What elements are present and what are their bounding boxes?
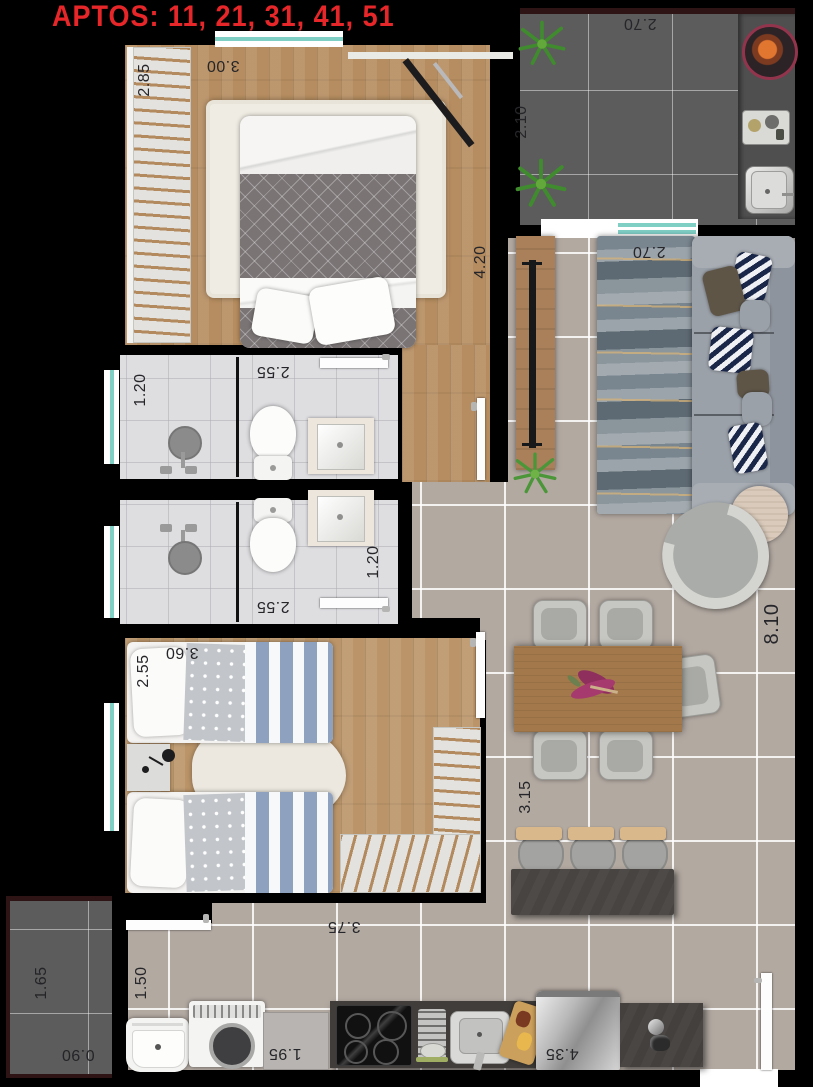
entrance-door <box>761 973 772 1070</box>
dim-bedroom2-width: 2.55 <box>134 643 154 699</box>
dim-bath1-length: 2.55 <box>245 361 301 381</box>
hall-floor <box>412 482 508 640</box>
laundry-sink <box>126 1018 189 1072</box>
shower-tap <box>185 524 197 532</box>
dining-chair <box>599 600 653 650</box>
bar-stool <box>568 827 614 873</box>
bedroom2-door <box>476 632 485 718</box>
shower-partition <box>236 502 239 622</box>
sink-lip <box>132 1023 183 1026</box>
shower-partition <box>236 357 239 477</box>
toilet <box>250 496 296 572</box>
laundry-door <box>126 920 211 930</box>
drain <box>155 1044 161 1050</box>
outdoor-sink <box>745 166 794 214</box>
dim-living-length: 8.10 <box>762 596 782 652</box>
chair-seat <box>541 740 577 772</box>
bowl <box>748 119 761 132</box>
window-glass <box>110 526 114 618</box>
chair-seat <box>607 608 643 640</box>
bar-stool <box>620 827 666 873</box>
food-item <box>515 1031 534 1052</box>
glass-pane <box>618 223 696 227</box>
dim-kitchen-length: 4.35 <box>534 1043 590 1063</box>
blanket <box>183 793 248 892</box>
bathroom1-door <box>320 358 388 368</box>
dim-living-width: 2.70 <box>621 241 677 261</box>
bedroom2-window <box>104 703 119 831</box>
striped-duvet <box>245 642 333 743</box>
toilet-bowl <box>250 518 296 572</box>
faucet <box>337 442 343 448</box>
wall-lining <box>348 52 513 59</box>
tv-foot <box>522 262 542 265</box>
dim-balcony-depth: 2.10 <box>512 94 532 150</box>
rack-base <box>416 1057 448 1062</box>
door-handle <box>470 638 476 647</box>
bbq-grill <box>742 24 798 80</box>
door-handle <box>471 402 477 411</box>
window-glass <box>110 703 114 831</box>
flush-button <box>270 465 276 471</box>
prep-tray <box>742 110 790 145</box>
bathroom2-door <box>320 598 388 608</box>
wall-patch-2 <box>128 893 212 923</box>
dining-table <box>514 646 682 732</box>
flush-button <box>270 507 276 513</box>
flower-centerpiece <box>560 668 630 708</box>
burner <box>344 1040 368 1064</box>
plant <box>513 450 557 498</box>
shower-tap <box>185 466 197 474</box>
dining-chair <box>533 730 587 780</box>
door-handle <box>382 354 390 360</box>
bathroom1-window <box>104 370 119 464</box>
dim-bath2-length: 2.55 <box>245 596 301 616</box>
table-lamp <box>162 749 175 762</box>
bar-counter <box>511 869 674 915</box>
bowl <box>765 115 779 129</box>
bathroom-sink <box>308 418 374 474</box>
dim-service-length: 1.65 <box>32 955 52 1011</box>
shower-head <box>168 541 202 575</box>
dish-rack <box>418 1009 446 1062</box>
dim-service-width: 0.90 <box>50 1044 106 1064</box>
single-bed <box>127 792 333 893</box>
fridge-top <box>536 991 620 997</box>
throw-pillow-chevron <box>708 326 754 374</box>
door-handle <box>382 606 390 612</box>
dim-bedroom1-width: 3.00 <box>195 55 251 75</box>
stool-back <box>568 827 614 840</box>
dining-chair <box>533 600 587 650</box>
stool-back <box>516 827 562 840</box>
page-title: APTOS: 11, 21, 31, 41, 51 <box>52 0 395 33</box>
mixer-base <box>650 1035 670 1051</box>
living-rug <box>597 236 695 514</box>
faucet <box>782 193 794 196</box>
faucet <box>337 514 343 520</box>
exterior-white-strip <box>700 1069 778 1087</box>
bar-stool <box>516 827 562 873</box>
burner <box>373 1039 399 1065</box>
dim-kitchen-width: 3.75 <box>316 916 372 936</box>
burner <box>377 1011 407 1041</box>
door-handle <box>203 914 209 923</box>
dining-chair <box>599 730 653 780</box>
bedroom1-window <box>215 31 343 47</box>
dim-bath2-width: 1.20 <box>364 534 384 590</box>
kitchen-counter-2 <box>620 1003 703 1067</box>
control-panel <box>193 1005 261 1018</box>
food-item <box>514 1009 532 1029</box>
floor-plan: APTOS: 11, 21, 31, 41, 51 2.70 2.10 <box>0 0 813 1087</box>
chair-seat <box>607 740 643 772</box>
striped-duvet <box>245 792 333 893</box>
window-glass <box>215 37 343 41</box>
bedroom1-door <box>477 398 485 480</box>
drain <box>765 189 770 194</box>
lumbar-pillow <box>742 392 772 426</box>
window-glass <box>110 370 114 464</box>
washing-machine <box>189 1001 265 1067</box>
shower-tap <box>160 466 172 474</box>
plant <box>516 20 568 68</box>
tv-foot <box>522 443 542 446</box>
sofa-backrest <box>770 236 795 515</box>
glass-pane <box>618 230 696 234</box>
dim-bedroom1-wardrobe: 2.85 <box>135 52 155 108</box>
bottle <box>776 129 784 140</box>
washer-door <box>209 1023 255 1069</box>
cooktop <box>336 1005 412 1066</box>
closet <box>340 834 481 893</box>
dim-bedroom2-length: 3.60 <box>154 642 210 662</box>
dim-laundry-length: 1.95 <box>257 1043 313 1063</box>
drain <box>477 1032 482 1037</box>
toilet <box>250 406 296 482</box>
toilet-bowl <box>250 406 296 460</box>
pillow <box>130 798 191 889</box>
dim-bedroom1-length: 4.20 <box>471 234 491 290</box>
plant <box>514 158 568 210</box>
duvet <box>240 174 416 284</box>
dim-dining-width: 3.15 <box>516 769 536 825</box>
tv <box>529 260 536 448</box>
dim-balcony-width: 2.70 <box>612 13 668 33</box>
wall-patch <box>398 618 480 640</box>
dim-bath1-width: 1.20 <box>131 362 151 418</box>
door-handle <box>754 978 762 983</box>
stool-back <box>620 827 666 840</box>
shower-head <box>168 426 202 460</box>
shower-tap <box>160 524 172 532</box>
chair-seat <box>541 608 577 640</box>
dim-laundry-width: 1.50 <box>132 955 152 1011</box>
bathroom2-window <box>104 526 119 618</box>
double-bed <box>240 116 416 348</box>
mixer-tap <box>648 1019 664 1035</box>
lamp-base <box>142 766 149 773</box>
shower-arm <box>181 452 185 468</box>
hall-floor-2 <box>486 640 508 905</box>
burner <box>345 1013 371 1039</box>
lumbar-pillow <box>740 300 770 332</box>
